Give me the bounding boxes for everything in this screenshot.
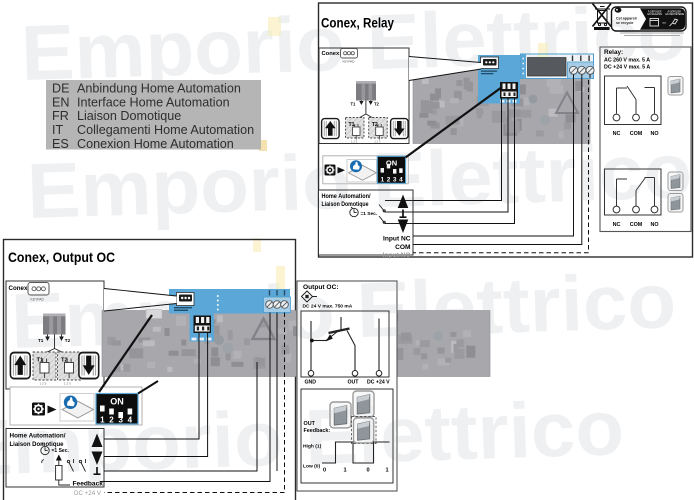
svg-text:Liaison Domotique: Liaison Domotique bbox=[77, 109, 181, 123]
svg-text:FR: FR bbox=[52, 109, 69, 123]
svg-text:NC: NC bbox=[613, 222, 621, 228]
svg-text:OUT: OUT bbox=[348, 380, 360, 386]
svg-text:EN: EN bbox=[52, 95, 70, 109]
svg-text:Interface Home Automation: Interface Home Automation bbox=[77, 95, 230, 109]
svg-text:COM: COM bbox=[630, 222, 643, 228]
svg-text:IT: IT bbox=[52, 123, 63, 137]
svg-text:DC +24 V: DC +24 V bbox=[367, 380, 390, 386]
svg-text:Collegamenti Home Automation: Collegamenti Home Automation bbox=[77, 123, 254, 137]
svg-text:1 2 3: 1 2 3 bbox=[40, 382, 47, 386]
svg-text:Input NO: Input NO bbox=[383, 252, 411, 259]
svg-text:Input NC: Input NC bbox=[383, 236, 411, 243]
svg-text:COM: COM bbox=[395, 244, 411, 251]
svg-text:T1: T1 bbox=[351, 102, 357, 107]
svg-text:Conex, Output OC: Conex, Output OC bbox=[8, 250, 115, 265]
svg-text:GND: GND bbox=[305, 380, 317, 386]
svg-text:T2: T2 bbox=[374, 102, 380, 107]
svg-text:NO: NO bbox=[650, 222, 658, 228]
svg-text:DC +24 V: DC +24 V bbox=[74, 490, 102, 497]
svg-text:1 2 3: 1 2 3 bbox=[64, 382, 71, 386]
